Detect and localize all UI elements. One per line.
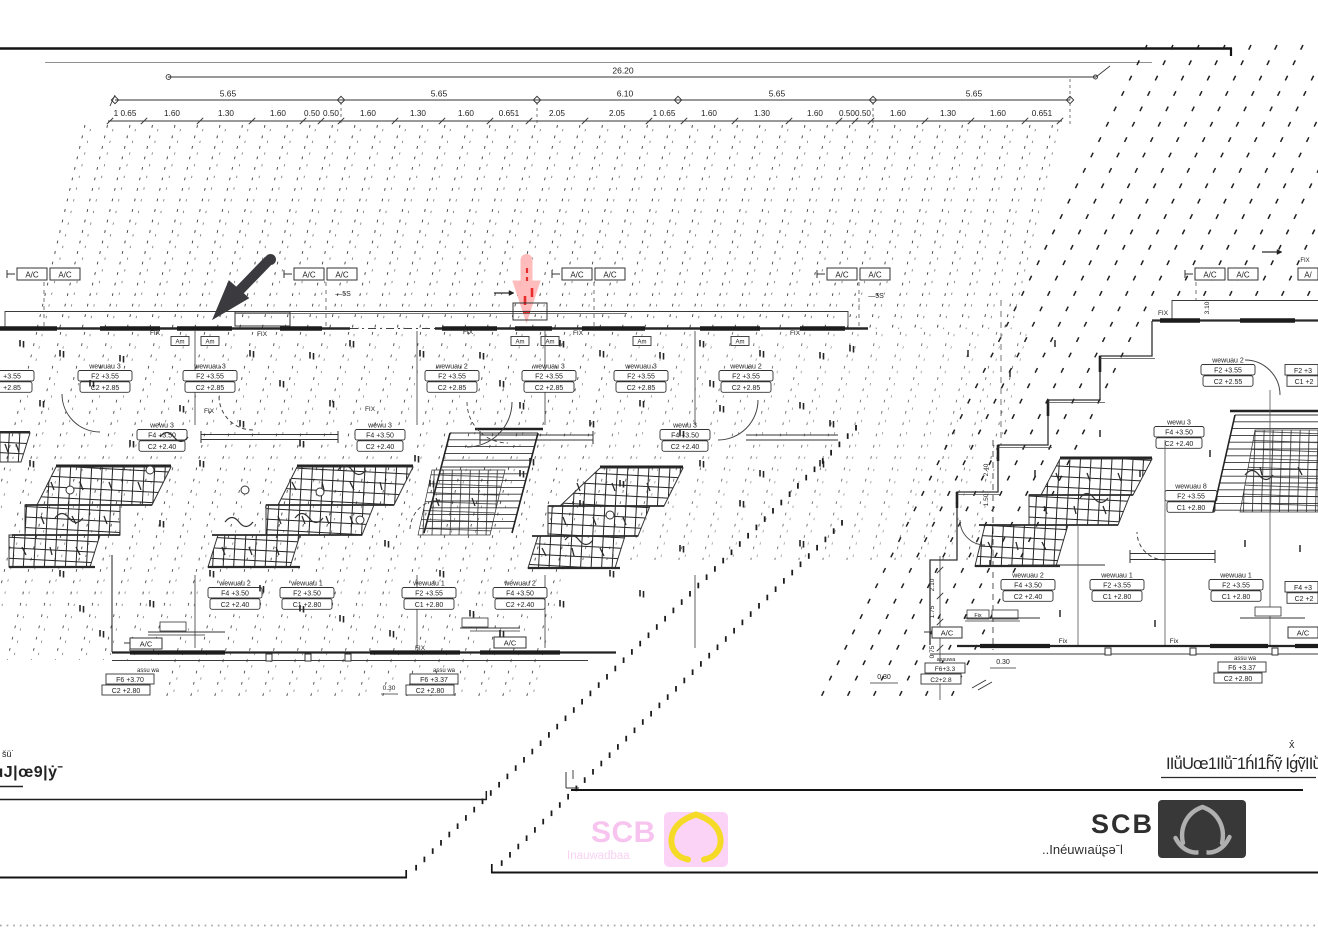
svg-text:1.60: 1.60 [807,109,823,118]
svg-text:A/C: A/C [570,271,584,280]
svg-text:6.10: 6.10 [617,89,634,99]
svg-text:C2 +2.40: C2 +2.40 [148,444,177,451]
svg-text:assuwa: assuwa [937,657,957,663]
svg-text:26.20: 26.20 [612,66,634,76]
svg-text:F2 +3.55: F2 +3.55 [732,373,760,380]
svg-text:5.65: 5.65 [769,89,786,99]
svg-text:A/C: A/C [1297,629,1310,638]
svg-text:0.50: 0.50 [323,109,339,118]
svg-text:wewuau 1: wewuau 1 [1219,573,1252,580]
svg-text:C1 +2: C1 +2 [1295,379,1314,386]
svg-text:1.50: 1.50 [983,493,990,506]
svg-text:FIX: FIX [1158,310,1169,317]
svg-text:F4 +3.50: F4 +3.50 [671,432,699,439]
svg-text:F2 +3.55: F2 +3.55 [535,373,563,380]
svg-text:SCB: SCB [591,816,656,849]
svg-text:A/C: A/C [302,271,316,280]
svg-text:F4 +3.50: F4 +3.50 [221,590,249,597]
svg-text:ІІṻUœ1ІІṻˉ1ɦ́І1ɦ̃ṿ̃ Іɡ́ṿ̃ІІṻˉ: ІІṻUœ1ІІṻˉ1ɦ́І1ɦ̃ṿ̃ Іɡ́ṿ̃ІІṻˉ [1166,753,1318,773]
svg-text:wewuau 2: wewuau 2 [729,364,762,371]
svg-text:C2 +2.40: C2 +2.40 [1165,441,1194,448]
svg-text:A/C: A/C [835,271,849,280]
svg-text:0.75: 0.75 [929,645,936,658]
svg-text:wewuau 3: wewuau 3 [624,364,657,371]
svg-text:wewuau 3: wewuau 3 [532,364,565,371]
svg-text:F6 +3.37: F6 +3.37 [420,677,448,684]
svg-text:0.651: 0.651 [499,109,520,118]
svg-text:C2 +2.40: C2 +2.40 [366,444,395,451]
svg-text:šü˙: šü˙ [2,749,15,759]
svg-text:Fix: Fix [1170,638,1179,645]
svg-text:SCB: SCB [1091,809,1154,839]
svg-text:C1 +2.80: C1 +2.80 [1222,594,1251,601]
svg-text:F6 +3.37: F6 +3.37 [1228,665,1256,672]
svg-text:Am: Am [206,340,215,346]
svg-text:0.50: 0.50 [839,109,855,118]
svg-text:F4 +3: F4 +3 [1294,585,1312,592]
svg-text:C1 +2.80: C1 +2.80 [1103,594,1132,601]
svg-text:Am: Am [516,340,525,346]
svg-text:A/C: A/C [58,271,72,280]
svg-text:wewuau 1: wewuau 1 [412,581,445,588]
svg-text:0.30: 0.30 [383,685,396,692]
svg-text:Am: Am [736,340,745,346]
svg-text:FIX: FIX [415,645,426,652]
svg-text:A/C: A/C [1203,271,1217,280]
svg-text:5.65: 5.65 [431,89,448,99]
svg-text:A/C: A/C [1236,271,1250,280]
svg-text:assu wa: assu wa [1234,656,1257,662]
svg-text:A/: A/ [1304,271,1312,280]
svg-text:Am: Am [638,340,647,346]
svg-text:A/C: A/C [868,271,882,280]
svg-text:F2 +3.55: F2 +3.55 [196,373,224,380]
svg-text:C2 +2.55: C2 +2.55 [1214,379,1243,386]
svg-text:2.40: 2.40 [983,463,990,476]
svg-text:Am: Am [546,340,555,346]
svg-text:wewuau 1: wewuau 1 [1100,573,1133,580]
svg-text:1.30: 1.30 [754,109,770,118]
svg-text:wewu 3: wewu 3 [672,423,697,430]
svg-text:A/C: A/C [335,271,349,280]
svg-text:FIX: FIX [790,330,801,337]
svg-text:C2 +2.85: C2 +2.85 [438,385,467,392]
svg-text:F2 +3.50: F2 +3.50 [293,590,321,597]
svg-text:C1 +2.80: C1 +2.80 [1177,505,1206,512]
svg-text:F2 +3: F2 +3 [1294,368,1312,375]
svg-text:A/C: A/C [504,639,517,648]
svg-text:C2 +2.40: C2 +2.40 [671,444,700,451]
svg-text:F2 +3.55: F2 +3.55 [438,373,466,380]
svg-text:F2 +3.55: F2 +3.55 [1222,582,1250,589]
svg-text:+2.85: +2.85 [3,385,21,392]
svg-text:C2+2.8: C2+2.8 [930,677,952,684]
svg-text:0.50: 0.50 [304,109,320,118]
svg-text:2.05: 2.05 [609,109,625,118]
svg-text:wewuau 3: wewuau 3 [193,364,226,371]
svg-text:1.30: 1.30 [218,109,234,118]
svg-text:wewu 3: wewu 3 [1166,420,1191,427]
svg-text:0.30: 0.30 [996,659,1010,666]
svg-text:0.30: 0.30 [877,674,891,681]
svg-text:assu wa: assu wa [137,668,160,674]
svg-text:wewuau 2: wewuau 2 [503,581,536,588]
svg-text:1 0.65: 1 0.65 [653,109,676,118]
svg-text:F2 +3.55: F2 +3.55 [415,590,443,597]
svg-text:1.60: 1.60 [360,109,376,118]
svg-text:0.50: 0.50 [855,109,871,118]
svg-text:0.651: 0.651 [1032,109,1053,118]
svg-text:F2 +3.55: F2 +3.55 [627,373,655,380]
svg-text:µJ|œ9|ẏˉ: µJ|œ9|ẏˉ [0,764,63,781]
svg-text:3.10: 3.10 [1204,301,1211,314]
svg-text:FIX: FIX [1300,258,1309,264]
svg-text:F2 +3.55: F2 +3.55 [1177,493,1205,500]
svg-text:C2 +2: C2 +2 [1295,596,1314,603]
svg-text:A/C: A/C [25,271,39,280]
svg-text:wewuau 2: wewuau 2 [435,364,468,371]
svg-text:C2 +2.85: C2 +2.85 [535,385,564,392]
svg-text:F2 +3.55: F2 +3.55 [1103,582,1131,589]
svg-text:FIX: FIX [573,330,584,337]
svg-text:F2 +3.55: F2 +3.55 [1214,367,1242,374]
svg-text:F2 +3.55: F2 +3.55 [91,373,119,380]
svg-text:Inauwadbaa: Inauwadbaa [567,850,630,862]
svg-text:1.60: 1.60 [701,109,717,118]
svg-text:F4 +3.50: F4 +3.50 [366,432,394,439]
svg-text:F4 +3.50: F4 +3.50 [1014,582,1042,589]
svg-text:FIX: FIX [365,406,376,413]
svg-text:wewuau 3: wewuau 3 [88,364,121,371]
svg-text:F6+3.3: F6+3.3 [935,666,956,673]
svg-text:C2 +2.80: C2 +2.80 [416,688,445,695]
svg-text:assu wa: assu wa [433,668,456,674]
svg-text:—5S: —5S [335,291,351,298]
svg-text:wewuau 2: wewuau 2 [1011,573,1044,580]
svg-text:C2 +2.85: C2 +2.85 [91,385,120,392]
svg-text:+3.55: +3.55 [3,373,21,380]
svg-text:FIX: FIX [261,645,272,652]
svg-text:A/C: A/C [941,629,954,638]
svg-text:..Inéuwıaüʂəˉl: ..Inéuwıaüʂəˉl [1042,842,1123,857]
svg-text:F4 +3.50: F4 +3.50 [506,590,534,597]
svg-text:wewuau 2: wewuau 2 [218,581,251,588]
svg-text:1 0.65: 1 0.65 [114,109,137,118]
svg-text:1.30: 1.30 [410,109,426,118]
svg-text:5.65: 5.65 [220,89,237,99]
svg-text:1.60: 1.60 [458,109,474,118]
svg-text:wewuau 8: wewuau 8 [1174,484,1207,491]
svg-text:C2 +2.80: C2 +2.80 [1224,676,1253,683]
svg-text:C1 +2.80: C1 +2.80 [293,602,322,609]
svg-text:C2 +2.85: C2 +2.85 [196,385,225,392]
svg-text:Fix: Fix [1059,638,1068,645]
svg-text:C2 +2.80: C2 +2.80 [112,688,141,695]
svg-text:1.60: 1.60 [990,109,1006,118]
svg-text:FIX: FIX [463,329,474,336]
svg-text:C2 +2.85: C2 +2.85 [732,385,761,392]
svg-text:FIX: FIX [150,330,161,337]
svg-text:wewuau 1: wewuau 1 [290,581,323,588]
svg-text:C2 +2.40: C2 +2.40 [221,602,250,609]
svg-text:A/C: A/C [140,640,153,649]
svg-text:C1 +2.80: C1 +2.80 [415,602,444,609]
svg-text:wewu 3: wewu 3 [367,423,392,430]
svg-text:F4 +3.50: F4 +3.50 [148,432,176,439]
svg-text:1.60: 1.60 [164,109,180,118]
svg-text:F4 +3.50: F4 +3.50 [1165,429,1193,436]
svg-text:C2 +2.40: C2 +2.40 [1014,594,1043,601]
svg-text:2.05: 2.05 [549,109,565,118]
svg-text:Am: Am [176,340,185,346]
svg-text:1.60: 1.60 [270,109,286,118]
svg-text:F6 +3.70: F6 +3.70 [116,677,144,684]
svg-text:—5S: —5S [868,293,884,300]
svg-text:A/C: A/C [603,271,617,280]
svg-text:wewu 3: wewu 3 [149,423,174,430]
svg-text:ẋ́: ẋ́ [1289,739,1295,751]
svg-text:C2 +2.40: C2 +2.40 [506,602,535,609]
svg-text:FIX: FIX [257,331,268,338]
svg-text:C2 +2.85: C2 +2.85 [627,385,656,392]
svg-text:FIX: FIX [204,408,215,415]
svg-text:1.60: 1.60 [890,109,906,118]
svg-text:5.65: 5.65 [966,89,983,99]
svg-text:1.30: 1.30 [940,109,956,118]
svg-text:wewuau 2: wewuau 2 [1211,358,1244,365]
